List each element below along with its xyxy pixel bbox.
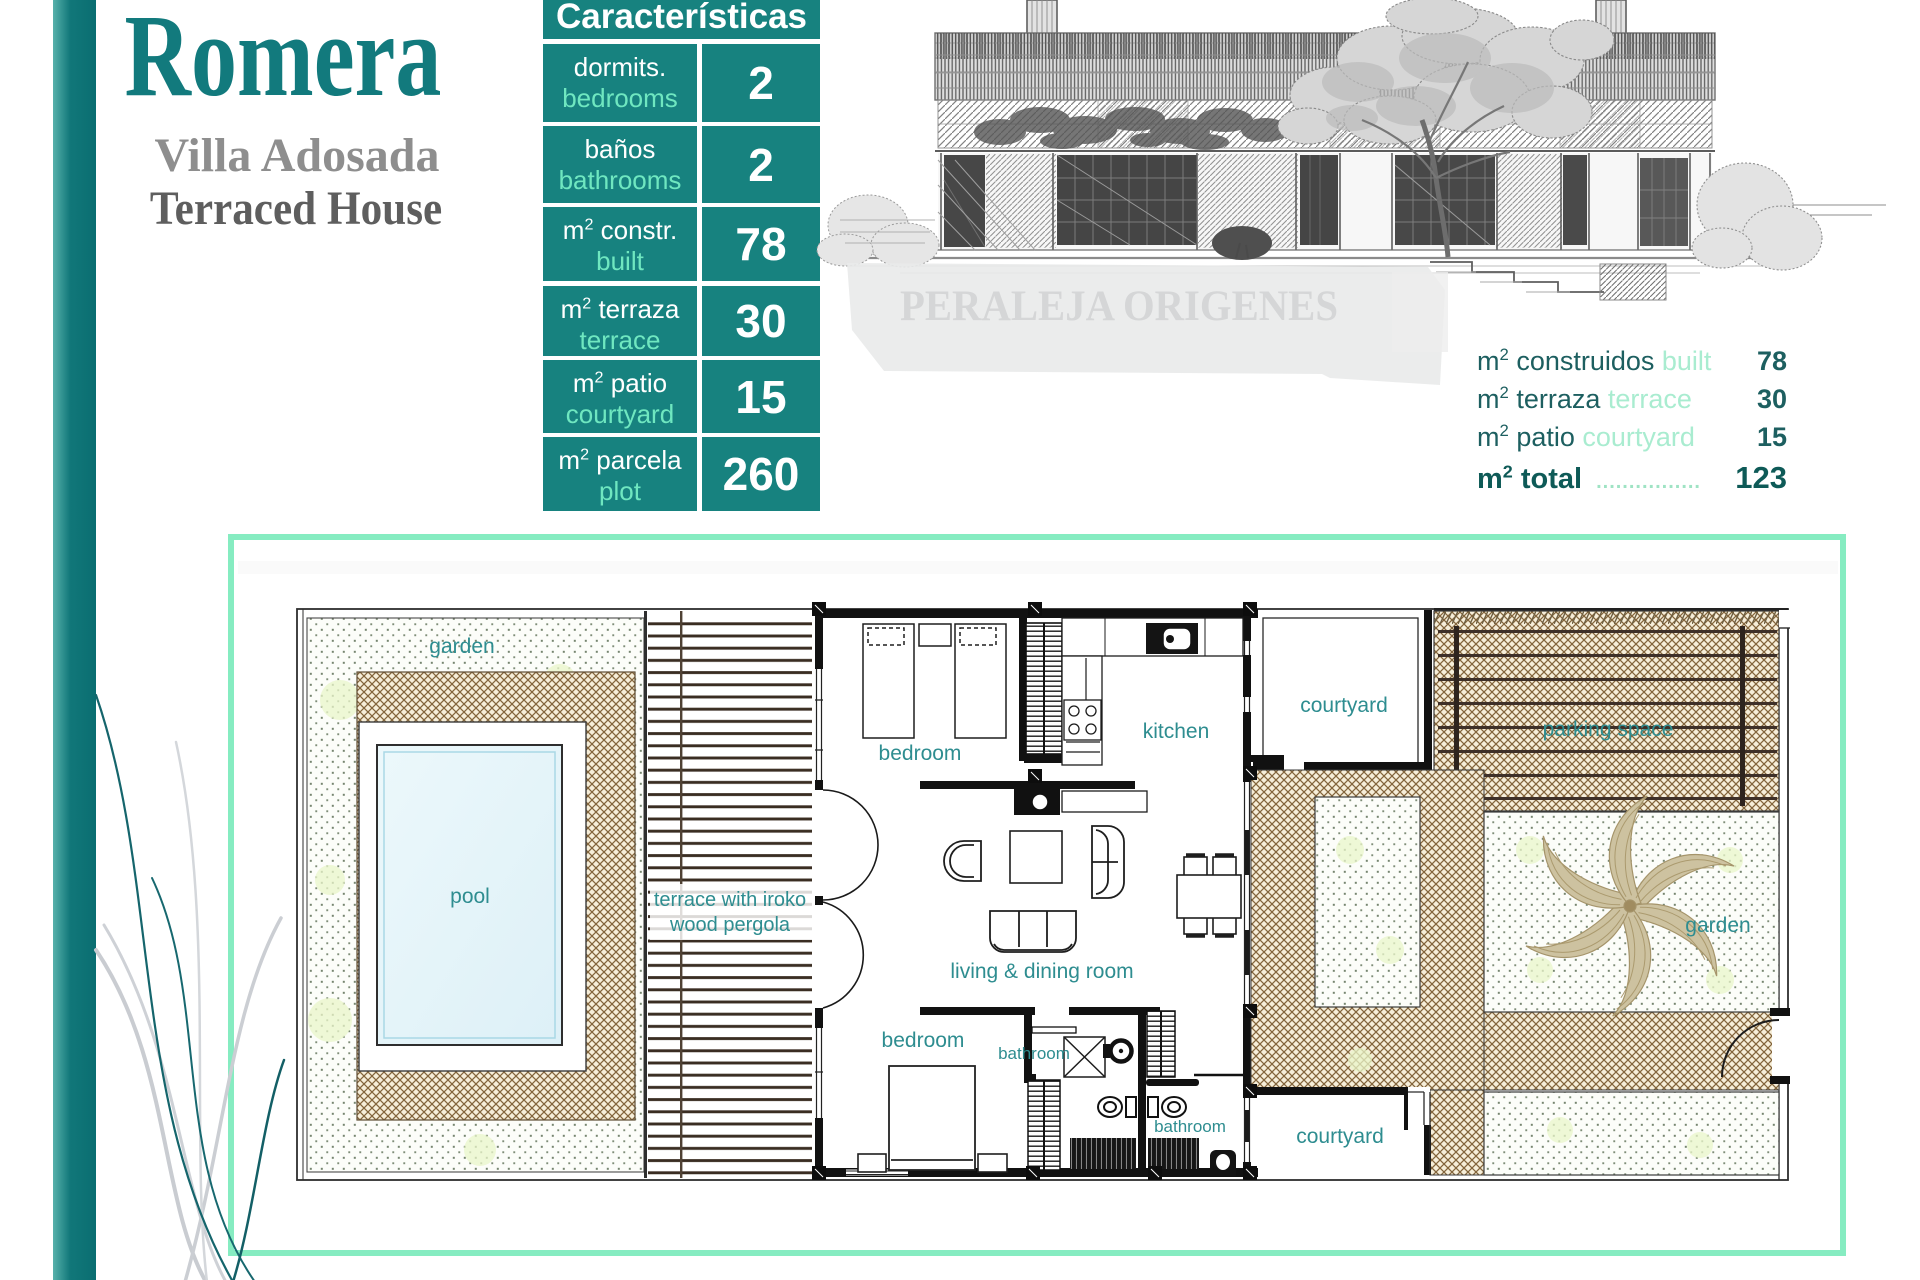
svg-text:garden: garden: [429, 635, 494, 658]
svg-text:pool: pool: [450, 885, 490, 908]
svg-text:courtyard: courtyard: [1300, 694, 1388, 717]
svg-text:terrace with iroko: terrace with iroko: [654, 889, 806, 911]
svg-text:wood pergola: wood pergola: [669, 914, 791, 936]
svg-text:bedroom: bedroom: [882, 1029, 965, 1052]
svg-text:parking space: parking space: [1543, 718, 1674, 741]
svg-text:PERALEJA ORIGENES: PERALEJA ORIGENES: [900, 283, 1338, 330]
svg-text:bathroom: bathroom: [1154, 1117, 1226, 1136]
svg-text:bathroom: bathroom: [998, 1044, 1070, 1063]
svg-text:kitchen: kitchen: [1143, 720, 1210, 743]
svg-text:living & dining room: living & dining room: [950, 960, 1133, 983]
svg-text:garden: garden: [1685, 914, 1750, 937]
svg-text:courtyard: courtyard: [1296, 1125, 1384, 1148]
svg-text:bedroom: bedroom: [879, 742, 962, 765]
